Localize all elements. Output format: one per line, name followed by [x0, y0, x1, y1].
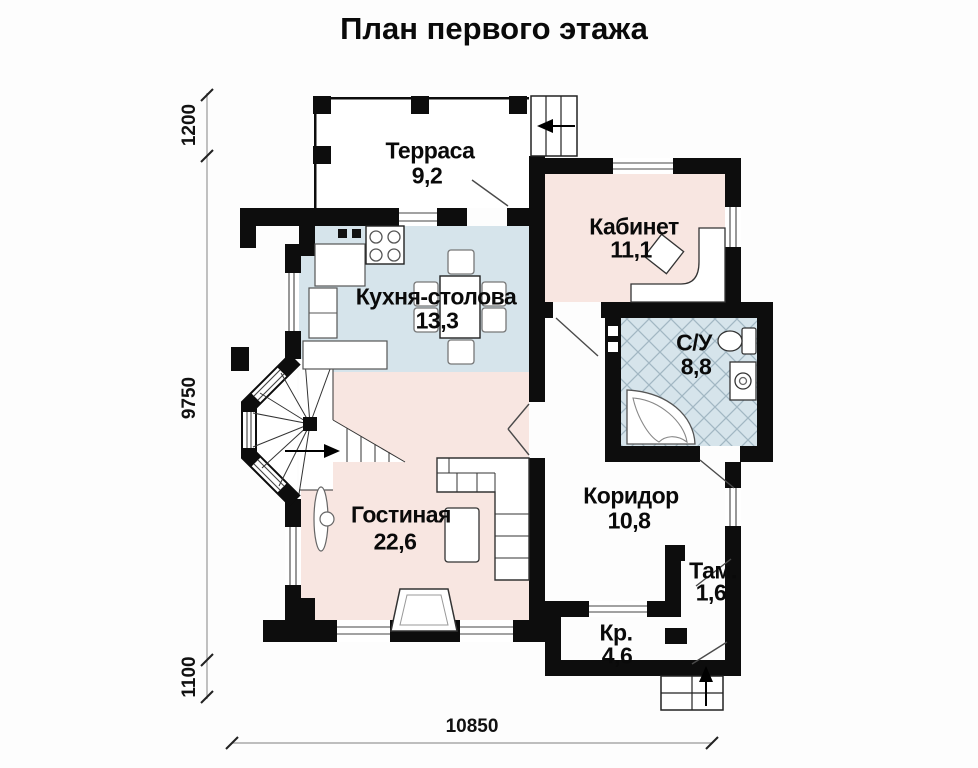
- counter-block: [352, 229, 361, 238]
- stove-icon: [366, 226, 404, 264]
- kitchen-counter: [315, 244, 365, 286]
- window-kitchen-top: [399, 208, 437, 226]
- window-office-right: [725, 207, 741, 247]
- room-label-terrace: Терраса: [386, 140, 475, 163]
- room-area-porch: 4,6: [602, 645, 632, 668]
- stair-post: [303, 417, 317, 431]
- room-area-kitchen: 13,3: [416, 310, 459, 333]
- room-area-terrace: 9,2: [412, 165, 442, 188]
- fireplace: [391, 589, 457, 631]
- window-bay-front: [247, 412, 251, 448]
- room-label-living: Гостиная: [351, 504, 451, 527]
- window-living-bottom-1: [337, 620, 390, 642]
- dimension-label-left-bottom: 1100: [179, 656, 201, 697]
- room-area-living: 22,6: [374, 531, 417, 554]
- counter-block: [338, 229, 347, 238]
- window-office-top: [613, 158, 673, 174]
- room-area-corridor: 10,8: [608, 510, 651, 533]
- room-label-corridor: Коридор: [583, 485, 678, 508]
- room-label-kitchen: Кухня-столова: [356, 286, 517, 309]
- room-label-bathroom: С/У: [676, 332, 712, 355]
- window-living-bottom-2: [460, 620, 513, 642]
- window-kitchen-left: [285, 273, 299, 331]
- kitchen-counter: [303, 341, 387, 369]
- room-area-vestibule: 1,6: [696, 582, 726, 605]
- washing-machine-icon: [730, 362, 756, 400]
- dimension-label-left-middle: 9750: [179, 377, 201, 419]
- dimension-label-left-top: 1200: [179, 104, 201, 146]
- window-corridor-right: [725, 488, 741, 526]
- room-label-office: Кабинет: [589, 216, 679, 239]
- room-label-porch: Кр.: [600, 622, 633, 645]
- entry-steps: [531, 96, 577, 156]
- dimension-label-bottom: 10850: [446, 716, 499, 738]
- kitchen-sink: [309, 288, 337, 338]
- room-area-office: 11,1: [610, 239, 652, 262]
- page-title: План первого этажа: [340, 11, 648, 47]
- window-living-left: [285, 527, 301, 585]
- window-porch: [589, 601, 647, 617]
- floor-plan-svg: [0, 0, 978, 768]
- floor-plan-page: План первого этажа Терраса 9,2 Кабинет 1…: [0, 0, 978, 768]
- room-area-bathroom: 8,8: [681, 356, 711, 379]
